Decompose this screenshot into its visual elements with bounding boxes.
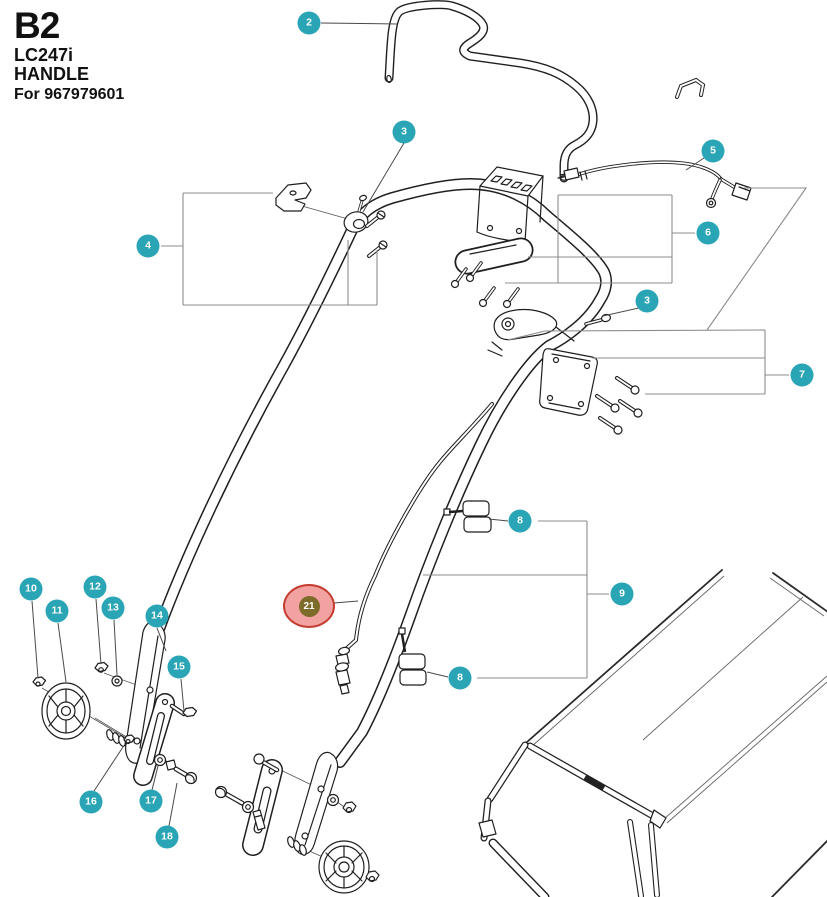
screw-3	[359, 194, 367, 201]
left-clamp-group	[276, 183, 387, 256]
callout-16[interactable]: 16	[80, 791, 103, 814]
clamp-cover	[540, 349, 598, 416]
callout-9[interactable]: 9	[611, 583, 634, 606]
clip-8-lower	[399, 654, 425, 669]
callout-8b[interactable]: 8	[449, 667, 472, 690]
callout-12[interactable]: 12	[84, 576, 107, 599]
callout-18[interactable]: 18	[156, 826, 179, 849]
callout-15[interactable]: 15	[168, 656, 191, 679]
right-clamp-group	[488, 310, 642, 434]
part-group-name: HANDLE	[14, 65, 124, 84]
right-fork-assembly	[216, 752, 380, 893]
callout-6[interactable]: 6	[697, 222, 720, 245]
callout-14[interactable]: 14	[146, 605, 169, 628]
callout-7[interactable]: 7	[791, 364, 814, 387]
hex-bolt-15	[183, 708, 197, 717]
washer-13	[112, 676, 122, 686]
clamp-screws	[597, 378, 642, 434]
callout-2[interactable]: 2	[298, 12, 321, 35]
washer-17	[155, 755, 166, 766]
cable-21	[335, 404, 492, 694]
title-block: B2 LC247i HANDLE For 967979601	[14, 6, 124, 104]
parts-diagram-page: B2 LC247i HANDLE For 967979601 2 3 4 5 6…	[0, 0, 827, 897]
lower-handle-tube	[158, 184, 606, 762]
callout-21-highlight[interactable]: 21	[283, 584, 335, 628]
grass-bag-frame	[479, 570, 827, 897]
ring-terminal	[707, 199, 716, 208]
callout-4[interactable]: 4	[137, 235, 160, 258]
bail-handle	[386, 5, 593, 181]
nut-12	[95, 663, 108, 672]
callout-10[interactable]: 10	[20, 578, 43, 601]
page-code: B2	[14, 6, 59, 46]
callout-8[interactable]: 8	[509, 510, 532, 533]
callout-21[interactable]: 21	[299, 596, 320, 617]
callout-5[interactable]: 5	[702, 140, 725, 163]
carriage-bolt	[254, 754, 264, 764]
for-serial: For 967979601	[14, 84, 124, 104]
connector	[732, 183, 751, 200]
callout-3b[interactable]: 3	[636, 290, 659, 313]
callout-13[interactable]: 13	[102, 597, 125, 620]
callout-11[interactable]: 11	[46, 600, 69, 623]
callout-3[interactable]: 3	[393, 121, 416, 144]
callout-17[interactable]: 17	[140, 790, 163, 813]
bolt-18	[186, 773, 197, 784]
clip-8-upper	[463, 501, 489, 516]
